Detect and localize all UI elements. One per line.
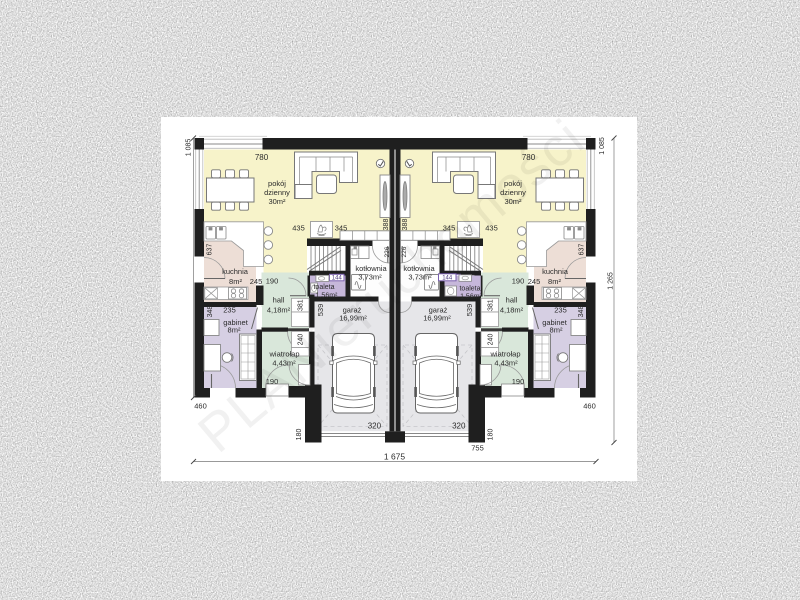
svg-text:539: 539 <box>465 304 474 317</box>
svg-text:8m²: 8m² <box>550 326 563 335</box>
svg-text:345: 345 <box>443 223 456 232</box>
svg-text:16,99m²: 16,99m² <box>423 313 451 322</box>
svg-text:539: 539 <box>316 304 325 317</box>
svg-text:235: 235 <box>223 306 236 315</box>
svg-text:hall: hall <box>506 295 518 304</box>
svg-text:388: 388 <box>383 219 390 231</box>
svg-text:8m²: 8m² <box>548 277 561 286</box>
svg-text:381: 381 <box>487 299 494 311</box>
svg-text:190: 190 <box>512 377 525 386</box>
svg-text:4,43m²: 4,43m² <box>494 359 518 368</box>
svg-text:dzienny: dzienny <box>264 188 290 197</box>
svg-text:kuchnia: kuchnia <box>222 267 249 276</box>
svg-text:345: 345 <box>335 223 348 232</box>
svg-text:toaleta: toaleta <box>459 286 480 293</box>
svg-text:460: 460 <box>194 402 207 411</box>
svg-text:381: 381 <box>298 299 305 311</box>
svg-text:1 675: 1 675 <box>384 452 406 462</box>
svg-text:180: 180 <box>296 429 303 441</box>
svg-text:16,99m²: 16,99m² <box>339 313 367 322</box>
svg-text:755: 755 <box>471 444 484 453</box>
svg-text:toaleta: toaleta <box>313 284 334 291</box>
svg-text:637: 637 <box>579 244 586 256</box>
svg-text:320: 320 <box>452 421 466 430</box>
svg-text:348: 348 <box>578 306 585 318</box>
svg-text:435: 435 <box>485 223 498 232</box>
svg-text:1,56m²: 1,56m² <box>460 293 482 300</box>
svg-text:245: 245 <box>528 277 541 286</box>
svg-text:wiatrołap: wiatrołap <box>489 350 520 359</box>
svg-text:190: 190 <box>266 377 279 386</box>
svg-text:190: 190 <box>512 276 525 285</box>
svg-text:348: 348 <box>207 306 214 318</box>
svg-text:pokój: pokój <box>504 179 522 188</box>
svg-text:hall: hall <box>273 295 285 304</box>
svg-text:30m²: 30m² <box>504 197 522 206</box>
svg-text:460: 460 <box>583 402 596 411</box>
svg-text:1 085: 1 085 <box>186 139 193 157</box>
svg-text:4,43m²: 4,43m² <box>272 359 296 368</box>
svg-text:4,18m²: 4,18m² <box>267 305 291 314</box>
svg-text:3,73m²: 3,73m² <box>408 272 432 281</box>
svg-text:240: 240 <box>298 334 305 346</box>
svg-text:1 265: 1 265 <box>608 272 615 290</box>
svg-text:4,18m²: 4,18m² <box>500 305 524 314</box>
svg-text:435: 435 <box>292 223 305 232</box>
svg-text:dzienny: dzienny <box>500 188 526 197</box>
svg-text:637: 637 <box>207 244 214 256</box>
svg-text:180: 180 <box>488 429 495 441</box>
svg-text:8m²: 8m² <box>229 277 242 286</box>
svg-text:kuchnia: kuchnia <box>542 267 569 276</box>
svg-text:226: 226 <box>401 246 408 257</box>
svg-text:226: 226 <box>384 246 391 257</box>
svg-text:3,73m²: 3,73m² <box>358 272 382 281</box>
svg-text:1 085: 1 085 <box>599 137 606 155</box>
svg-text:388: 388 <box>402 219 409 231</box>
svg-text:144: 144 <box>332 276 343 282</box>
svg-text:1,56m²: 1,56m² <box>316 292 338 299</box>
svg-text:pokój: pokój <box>268 179 286 188</box>
svg-text:30m²: 30m² <box>268 197 286 206</box>
svg-text:wiatrołap: wiatrołap <box>268 350 299 359</box>
svg-text:245: 245 <box>250 277 263 286</box>
svg-text:320: 320 <box>368 421 382 430</box>
svg-text:144: 144 <box>442 275 453 281</box>
svg-text:235: 235 <box>554 306 567 315</box>
svg-text:780: 780 <box>522 153 536 162</box>
svg-text:190: 190 <box>266 276 279 285</box>
svg-text:240: 240 <box>487 334 494 346</box>
svg-text:780: 780 <box>255 153 269 162</box>
svg-text:8m²: 8m² <box>228 326 241 335</box>
